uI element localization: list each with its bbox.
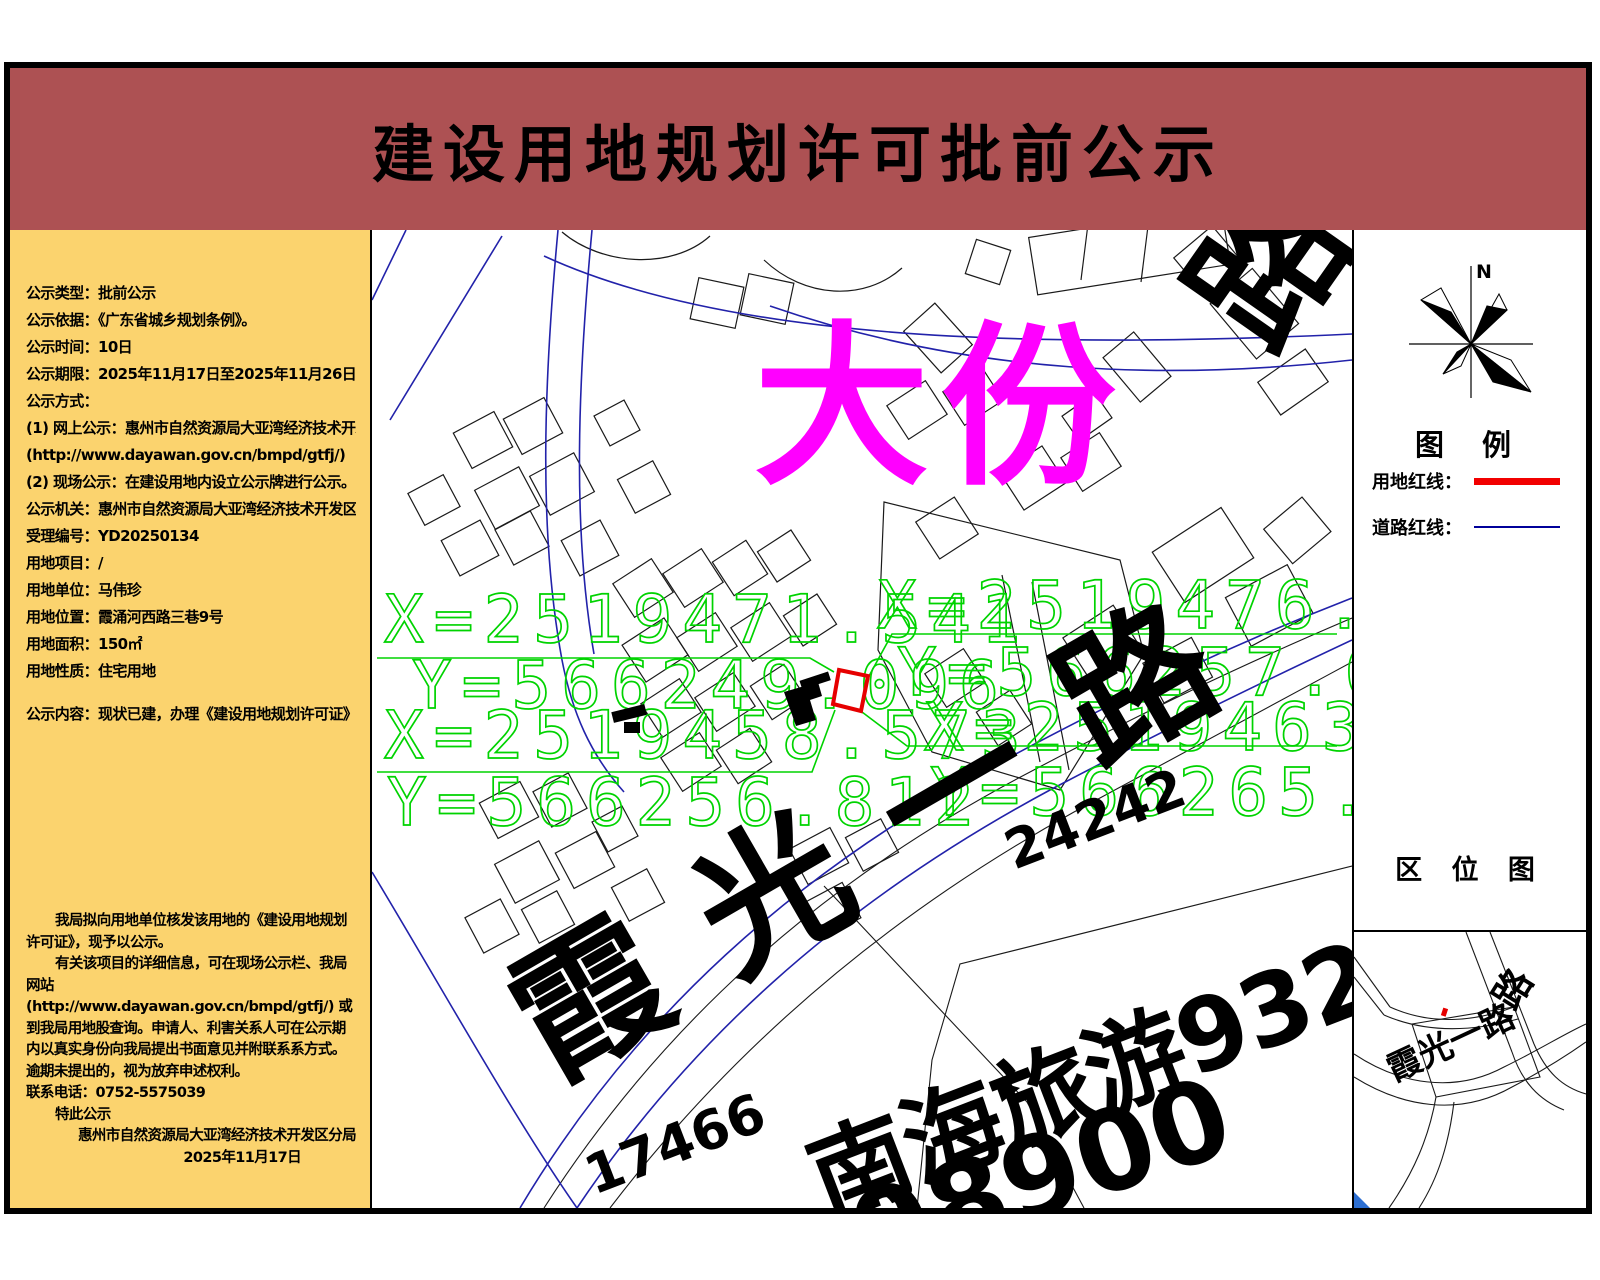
notice-frame: 建设用地规划许可批前公示 公示类型：批前公示 公示依据：《广东省城乡规划条例》。… [4, 62, 1592, 1214]
location-map-title: 区 位 图 [1354, 848, 1586, 887]
content-row: 公示类型：批前公示 公示依据：《广东省城乡规划条例》。 公示时间：10日 公示期… [10, 230, 1586, 1208]
notice-line: (1) 网上公示：惠州市自然资源局大亚湾经济技术开发区分局 [26, 420, 356, 437]
planning-map: X=2519471.541 Y=566249.096 X=2519458.573… [372, 230, 1352, 1208]
road-redline-swatch [1474, 526, 1560, 528]
legend-label-road: 道路红线： [1372, 514, 1462, 540]
location-map-canvas: 霞光一路 路 [1354, 932, 1586, 1208]
notice-line: 用地位置：霞涌河西路三巷9号 [26, 609, 356, 626]
closing-line: 特此公示 [26, 1105, 356, 1127]
location-road-label: 霞光一路 [1381, 996, 1522, 1090]
notice-line: 公示时间：10日 [26, 339, 356, 356]
paragraph-1: 我局拟向用地单位核发该用地的《建设用地规划许可证》，现予以公示。 [26, 911, 356, 954]
page-title: 建设用地规划许可批前公示 [372, 104, 1224, 194]
legend-item-road: 道路红线： [1372, 514, 1560, 540]
legend-item-parcel: 用地红线： [1372, 468, 1560, 494]
notice-line: 用地性质：住宅用地 [26, 663, 356, 680]
notice-line: 用地面积：150㎡ [26, 636, 356, 653]
notice-line: 公示期限：2025年11月17日至2025年11月26日 [26, 366, 356, 383]
legend-label-parcel: 用地红线： [1372, 468, 1462, 494]
notice-line: (http://www.dayawan.gov.cn/bmpd/gtfj/) [26, 447, 356, 464]
notice-line: 公示依据：《广东省城乡规划条例》。 [26, 312, 356, 329]
plot-number-17466: 17466 [576, 1081, 774, 1207]
notice-page: 建设用地规划许可批前公示 公示类型：批前公示 公示依据：《广东省城乡规划条例》。… [0, 0, 1600, 1280]
district-label: 大份 [754, 307, 1128, 510]
notice-line: 公示类型：批前公示 [26, 285, 356, 302]
notice-line: 用地项目：/ [26, 555, 356, 572]
agency-line: 惠州市自然资源局大亚湾经济技术开发区分局 [26, 1126, 356, 1148]
north-label: N [1476, 261, 1492, 283]
legend-title: 图 例 [1354, 422, 1586, 464]
notice-line: (2) 现场公示：在建设用地内设立公示牌进行公示。 [26, 474, 356, 491]
notice-line: 用地单位：马伟珍 [26, 582, 356, 599]
location-site-marker [1441, 1008, 1448, 1017]
planning-map-canvas: X=2519471.541 Y=566249.096 X=2519458.573… [372, 230, 1352, 1208]
notice-line: 公示机关：惠州市自然资源局大亚湾经济技术开发区分局 [26, 501, 356, 518]
legend-panel: N 图 例 用地红线： 道路红线： 区 位 图 [1352, 230, 1586, 1208]
date-line: 2025年11月17日 [26, 1148, 356, 1170]
notice-paragraphs: 我局拟向用地单位核发该用地的《建设用地规划许可证》，现予以公示。 有关该项目的详… [26, 911, 356, 1169]
notice-line: 公示方式： [26, 393, 356, 410]
compass-rose: N [1405, 252, 1535, 402]
header-banner: 建设用地规划许可批前公示 [10, 68, 1586, 230]
paragraph-2: 有关该项目的详细信息，可在现场公示栏、我局网站(http://www.dayaw… [26, 954, 356, 1083]
notice-content-line: 公示内容：现状已建，办理《建设用地规划许可证》手续。 [26, 706, 356, 723]
parcel-redline-swatch [1474, 478, 1560, 485]
notice-sidebar: 公示类型：批前公示 公示依据：《广东省城乡规划条例》。 公示时间：10日 公示期… [10, 230, 372, 1208]
location-map: 霞光一路 路 [1354, 930, 1586, 1208]
water-wedge [1354, 1192, 1370, 1208]
phone-line: 联系电话：0752-5575039 [26, 1083, 356, 1105]
notice-line: 受理编号：YD20250134 [26, 528, 356, 545]
